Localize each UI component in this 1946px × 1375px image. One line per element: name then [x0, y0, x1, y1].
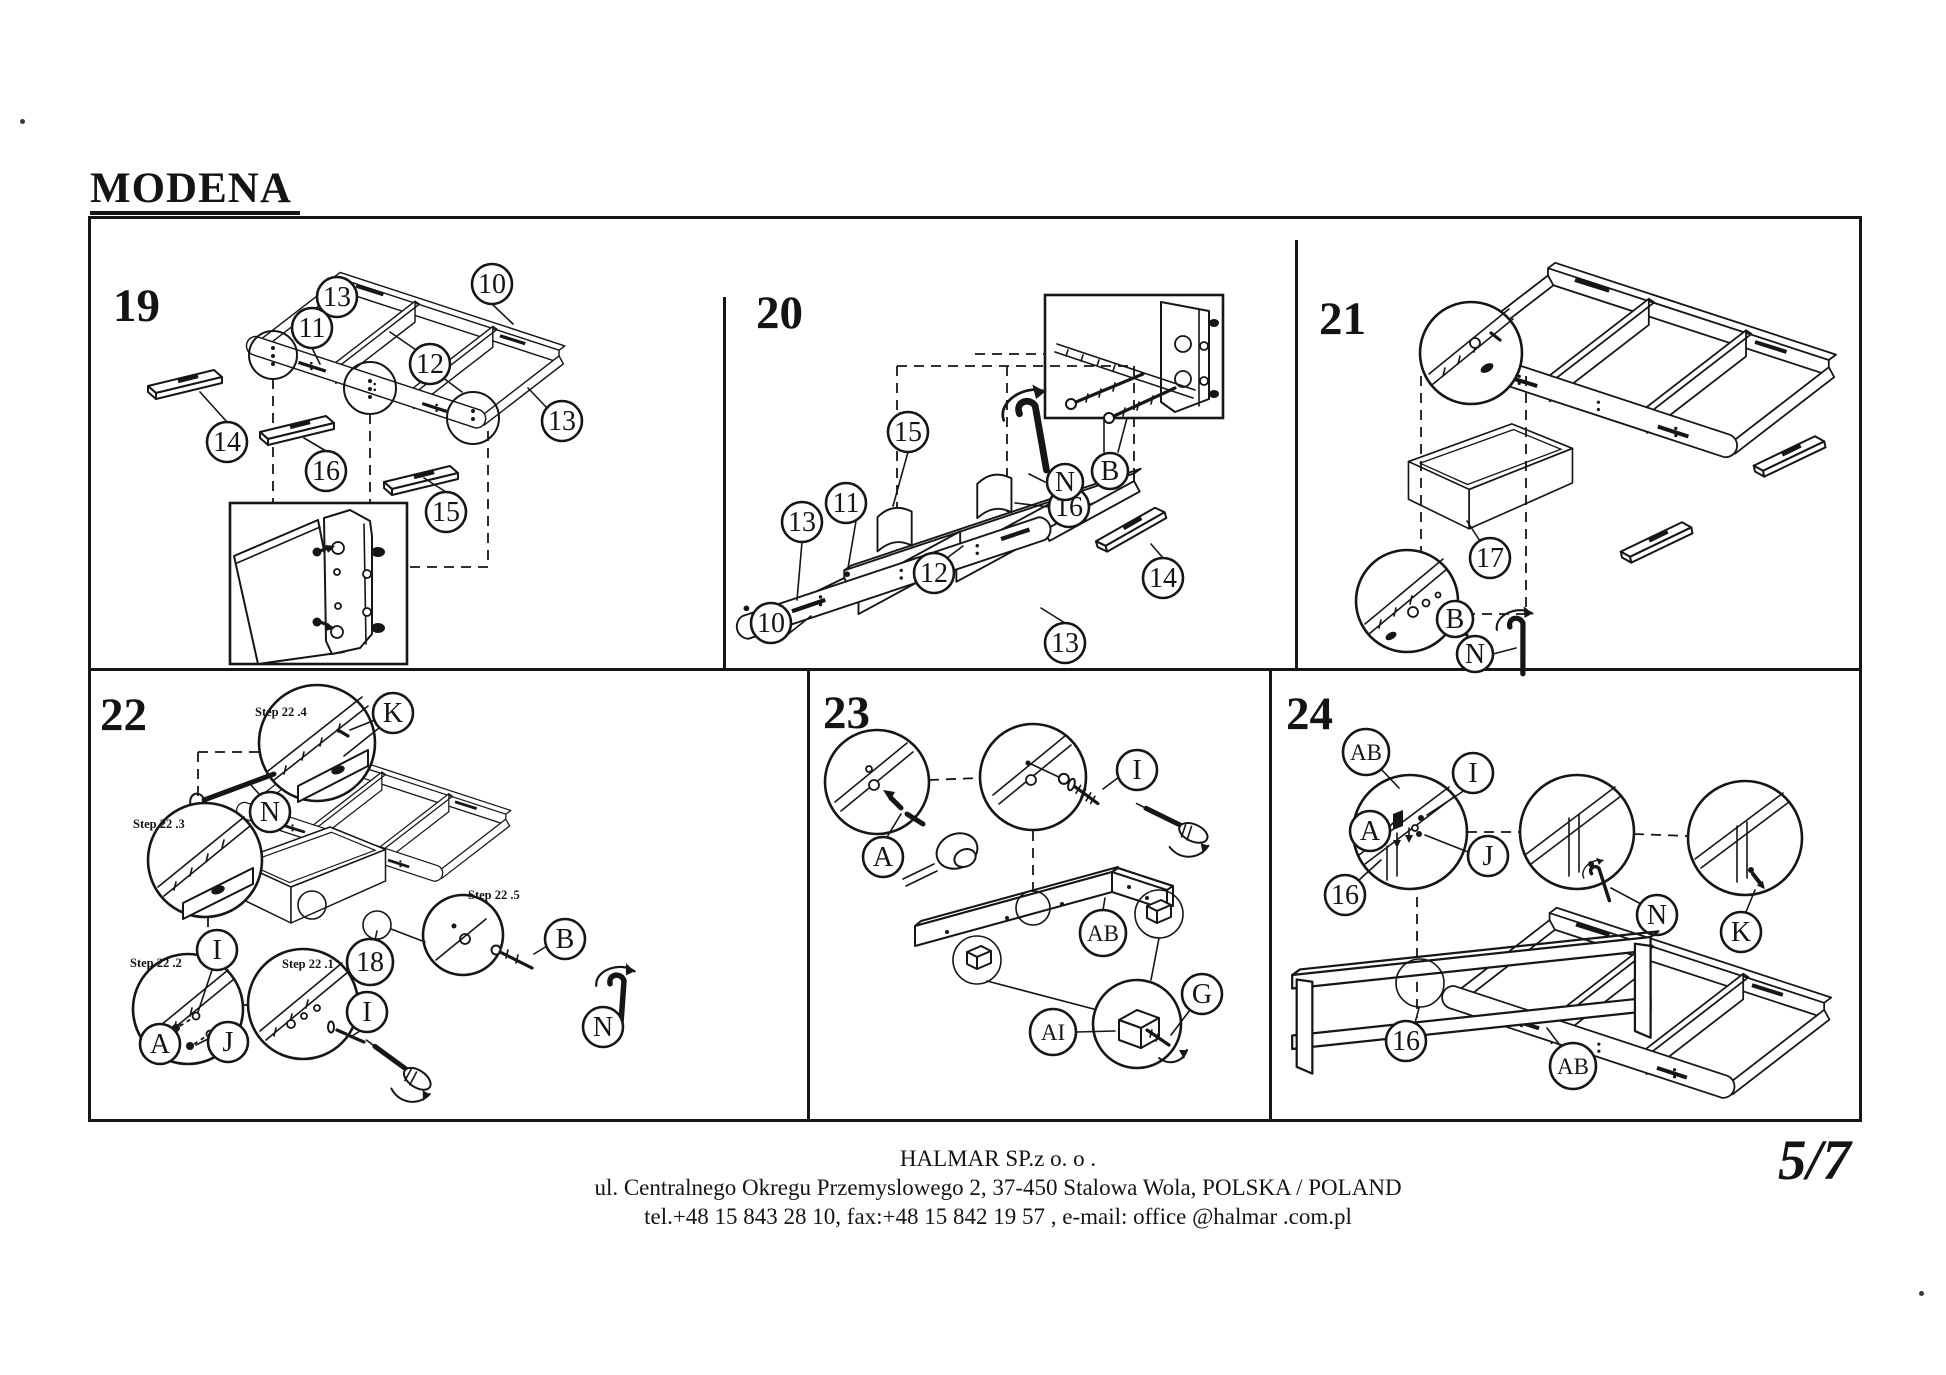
svg-text:J: J [223, 1027, 234, 1058]
svg-text:10: 10 [757, 608, 785, 639]
svg-text:K: K [383, 698, 403, 729]
svg-text:16: 16 [1331, 880, 1359, 911]
magnifier-middle [1520, 775, 1634, 905]
roller-wheel [903, 827, 983, 886]
svg-text:10: 10 [478, 269, 506, 300]
scan-speck-bottom-right [1919, 1291, 1924, 1296]
magnifier-step-22-3: Step 22 .3 [133, 803, 262, 919]
svg-text:N: N [593, 1012, 613, 1043]
callout-N: N [1457, 636, 1493, 672]
panel-step-21: 21 17 B N [1295, 216, 1862, 668]
svg-text:13: 13 [1051, 628, 1079, 659]
callout-B: B [1437, 601, 1473, 637]
callout-I: I [1453, 753, 1493, 793]
side-panel [1750, 435, 1828, 479]
step-number: 21 [1319, 293, 1366, 345]
callout-G: G [1182, 974, 1222, 1014]
callout-16: 16 [306, 451, 346, 491]
panel-step-20: 20 15 16 11 13 12 10 14 13 N B [723, 216, 1295, 668]
callout-leader [1103, 777, 1119, 789]
drawer-box [1408, 424, 1572, 529]
callout-AI: AI [1030, 1009, 1076, 1055]
magnifier-detail-bottom [1356, 550, 1458, 652]
callout-11: 11 [826, 483, 866, 523]
svg-text:A: A [1360, 816, 1381, 847]
svg-text:AB: AB [1350, 740, 1382, 765]
svg-text:13: 13 [323, 282, 351, 313]
step-sub-label: Step 22 .2 [130, 956, 182, 970]
step-number: 20 [756, 287, 803, 339]
callout-A: A [1350, 811, 1390, 851]
callout-AB: AB [1080, 910, 1126, 956]
callout-I: I [1117, 750, 1157, 790]
callout-leader [250, 784, 260, 795]
svg-text:A: A [150, 1029, 171, 1060]
svg-text:K: K [1731, 917, 1751, 948]
callout-J: J [208, 1022, 248, 1062]
svg-text:N: N [1055, 467, 1075, 498]
svg-text:11: 11 [299, 313, 326, 344]
magnifier-step-22-1: Step 22 .1 [248, 949, 358, 1059]
svg-text:N: N [1465, 639, 1485, 670]
svg-text:I: I [1132, 755, 1141, 786]
svg-text:I: I [1468, 758, 1477, 789]
step-sub-label: Step 22 .1 [282, 957, 334, 971]
svg-text:12: 12 [416, 349, 444, 380]
corner-detail-inset [230, 503, 407, 664]
panel-step-22: 22 Step 22 .4 K N Step 22 [88, 668, 807, 1122]
svg-text:G: G [1192, 979, 1212, 1010]
svg-text:AI: AI [1041, 1020, 1065, 1045]
screwdriver-icon [1129, 804, 1213, 861]
callout-14: 14 [1143, 558, 1183, 598]
company-contact: tel.+48 15 843 28 10, fax:+48 15 842 19 … [273, 1202, 1723, 1231]
step-number: 19 [113, 280, 160, 332]
callout-A: A [863, 837, 903, 877]
magnifier-corner-block [1093, 980, 1187, 1068]
callout-12: 12 [410, 344, 450, 384]
screwdriver-icon [352, 1040, 440, 1108]
callout-18: 18 [347, 939, 393, 985]
step-sub-label: Step 22 .3 [133, 817, 185, 831]
svg-text:B: B [1446, 604, 1465, 635]
panel-step-24: 24 AB I A J 16 N [1269, 668, 1862, 1122]
callout-I2: I [347, 992, 387, 1032]
callout-10: 10 [472, 264, 512, 304]
callout-B: B [545, 919, 585, 959]
side-panel-14 [148, 370, 222, 399]
callout-leader [1611, 888, 1641, 904]
svg-text:16: 16 [1392, 1026, 1420, 1057]
callout-13: 13 [782, 502, 822, 542]
callout-AB2: AB [1550, 1043, 1596, 1089]
callout-N: N [1637, 895, 1677, 935]
svg-text:13: 13 [548, 406, 576, 437]
callout-B: B [1092, 453, 1128, 489]
callout-13b: 13 [1045, 623, 1085, 663]
callout-A: A [140, 1024, 180, 1064]
callout-N: N [250, 792, 290, 832]
callout-13b: 13 [542, 401, 582, 441]
magnifier-right [980, 724, 1086, 830]
magnifier-step-22-5: Step 22 .5 [423, 888, 520, 975]
svg-text:17: 17 [1476, 543, 1504, 574]
svg-text:12: 12 [920, 558, 948, 589]
svg-text:15: 15 [894, 417, 922, 448]
callout-15: 15 [426, 492, 466, 532]
callout-I: I [197, 930, 237, 970]
side-panel-14 [1092, 506, 1171, 554]
joint-circle [363, 911, 391, 939]
panel-step-19: 19 [88, 216, 723, 668]
allen-key-icon [1492, 604, 1533, 674]
svg-text:A: A [873, 842, 894, 873]
callout-N: N [1047, 464, 1083, 500]
callout-16a: 16 [1325, 875, 1365, 915]
frame-drawing [246, 272, 564, 444]
side-panel [1617, 521, 1695, 565]
svg-text:18: 18 [356, 947, 384, 978]
svg-text:15: 15 [432, 497, 460, 528]
footer: HALMAR SP.z o. o . ul. Centralnego Okreg… [273, 1144, 1723, 1231]
callout-14: 14 [207, 422, 247, 462]
company-name: HALMAR SP.z o. o . [273, 1144, 1723, 1173]
svg-text:B: B [556, 924, 575, 955]
callout-17: 17 [1470, 538, 1510, 578]
callout-K: K [373, 693, 413, 733]
callout-J: J [1468, 836, 1508, 876]
instruction-sheet: MODENA [0, 0, 1946, 1375]
callout-N2: N [583, 1007, 623, 1047]
svg-text:AB: AB [1087, 921, 1119, 946]
step-number: 22 [100, 689, 147, 741]
magnifier-detail-top [1420, 302, 1522, 404]
callout-16b: 16 [1386, 1021, 1426, 1061]
callout-10: 10 [751, 603, 791, 643]
allen-key-icon [1001, 384, 1051, 473]
svg-text:16: 16 [312, 456, 340, 487]
svg-text:I: I [362, 997, 371, 1028]
callout-K: K [1721, 912, 1761, 952]
magnifier-step-22-4: Step 22 .4 [255, 685, 375, 802]
svg-text:I: I [212, 935, 221, 966]
panel-step-23: 23 A I [807, 668, 1269, 1122]
callout-AB1: AB [1343, 729, 1389, 775]
svg-text:N: N [260, 797, 280, 828]
svg-text:N: N [1647, 900, 1667, 931]
step-sub-label: Step 22 .5 [468, 888, 520, 902]
page-number: 5/7 [1778, 1128, 1851, 1193]
svg-text:B: B [1101, 456, 1120, 487]
callout-12: 12 [914, 553, 954, 593]
callout-15: 15 [888, 412, 928, 452]
svg-text:13: 13 [788, 507, 816, 538]
svg-text:AB: AB [1557, 1054, 1589, 1079]
svg-text:J: J [1483, 841, 1494, 872]
svg-text:11: 11 [833, 488, 860, 519]
magnifier-right [1688, 781, 1802, 895]
svg-text:14: 14 [213, 427, 241, 458]
side-panel-15 [384, 466, 458, 495]
step-number: 24 [1286, 688, 1333, 740]
step-sub-label: Step 22 .4 [255, 705, 307, 719]
scan-speck-top-left [20, 119, 25, 124]
magnifier-link [391, 929, 425, 942]
side-panel-16 [260, 416, 334, 445]
company-address: ul. Centralnego Okregu Przemyslowego 2, … [273, 1173, 1723, 1202]
svg-text:14: 14 [1149, 563, 1177, 594]
callout-11: 11 [292, 308, 332, 348]
product-title: MODENA [90, 166, 300, 215]
